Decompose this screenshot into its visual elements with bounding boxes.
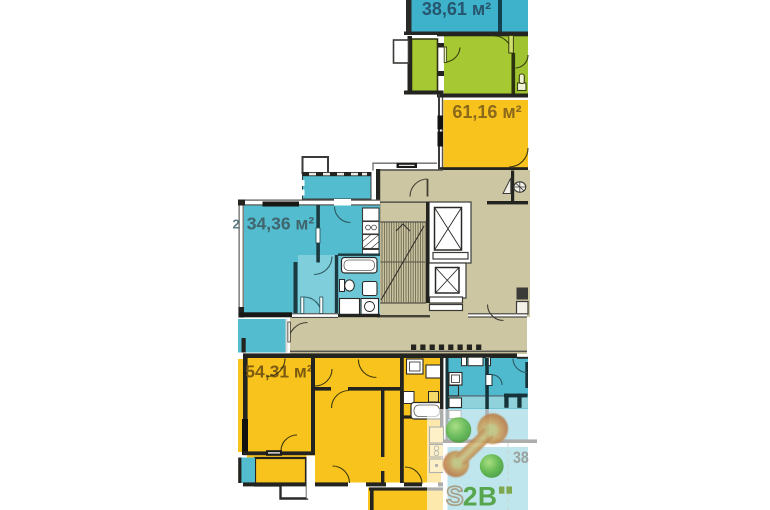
svg-text:2: 2	[233, 217, 240, 232]
svg-text:38: 38	[513, 449, 529, 467]
svg-text:61,16 м²: 61,16 м²	[452, 102, 521, 122]
svg-text:38,61 м²: 38,61 м²	[422, 0, 491, 19]
svg-text:2B: 2B	[463, 481, 498, 510]
svg-text:34,36 м²: 34,36 м²	[247, 214, 315, 234]
svg-text:S: S	[446, 481, 464, 510]
